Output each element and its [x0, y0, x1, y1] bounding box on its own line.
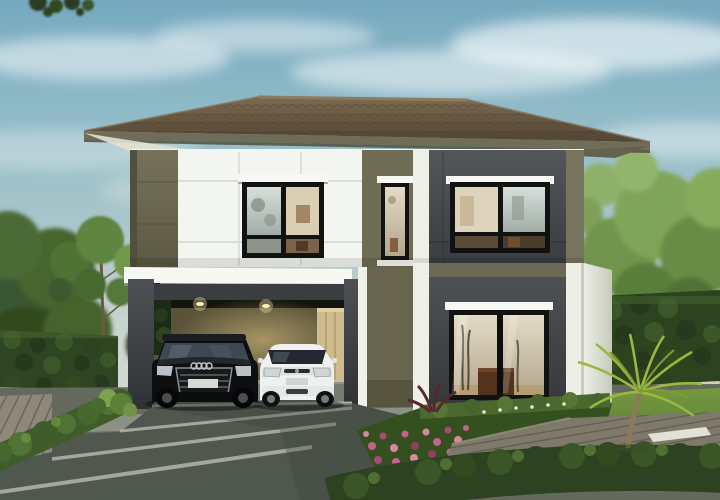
olive-band-right [429, 263, 584, 277]
white-hatchback [258, 344, 337, 407]
carport-fascia-band [124, 267, 352, 284]
black-suv [152, 334, 258, 408]
lower-sliding-glass-door [445, 302, 553, 400]
upper-narrow-window [377, 176, 414, 266]
white-pilaster-mid [413, 150, 429, 267]
hatchback-license-plate [286, 378, 308, 385]
white-return-wall [584, 263, 612, 406]
suv-headlight-right [235, 366, 251, 376]
carport-left-pillar [128, 279, 154, 409]
cars [145, 334, 344, 411]
scene-canvas [0, 0, 720, 500]
upper-right-window [446, 176, 554, 253]
white-strip-a [358, 267, 367, 413]
olive-column-left [130, 150, 178, 268]
upper-left-window [238, 174, 328, 258]
hatchback-headlight-right [313, 368, 330, 377]
olive-corner-right [566, 150, 584, 267]
carport-right-pillar [344, 279, 358, 409]
carport-beam [154, 284, 344, 300]
second-floor [130, 149, 584, 268]
suv-headlight-left [157, 366, 173, 376]
suv-license-plate [188, 379, 218, 388]
house-rendering-scene [0, 0, 720, 500]
hatchback-headlight-left [264, 368, 281, 377]
